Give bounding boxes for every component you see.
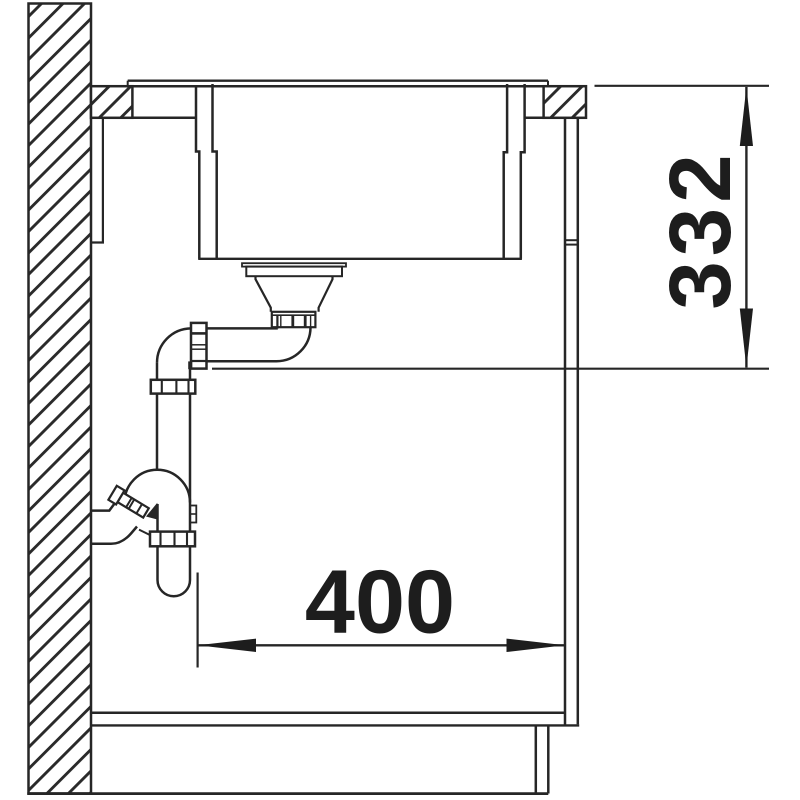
svg-text:332: 332: [652, 149, 749, 309]
svg-text:400: 400: [305, 553, 455, 653]
